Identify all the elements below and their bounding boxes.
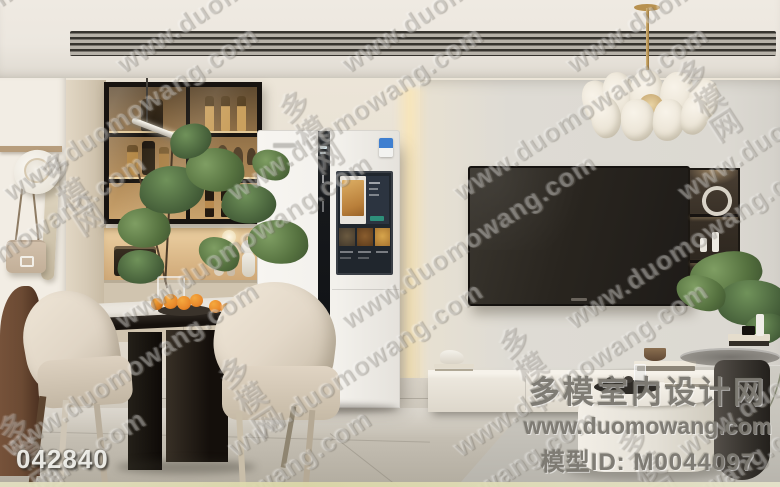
- pendant-cord: [146, 78, 148, 122]
- tv-reflection: [470, 168, 601, 250]
- tv-screen: [468, 166, 690, 306]
- orange: [163, 294, 178, 309]
- dark-box: [742, 326, 755, 335]
- candle: [700, 238, 707, 252]
- caption-line: [358, 251, 371, 253]
- cup: [624, 376, 633, 383]
- caption-line: [376, 251, 388, 253]
- chair-left-seat: [36, 355, 133, 409]
- menu-line: [369, 194, 379, 196]
- table-floor-shadow: [116, 460, 256, 474]
- cosmetic-bottle: [756, 314, 764, 336]
- niche-spotlight: [690, 170, 738, 184]
- food-thumb[interactable]: [339, 228, 355, 246]
- books-stack: [434, 364, 474, 368]
- fridge-brand: [273, 143, 297, 148]
- side-table-column: [714, 360, 770, 480]
- confirm-button[interactable]: [370, 216, 384, 221]
- candle: [712, 232, 719, 252]
- bottom-edge-strip: [0, 482, 780, 487]
- handbag-clasp: [20, 256, 34, 267]
- chandelier: [583, 70, 719, 138]
- cup: [606, 377, 616, 384]
- chandelier-rod: [646, 8, 649, 78]
- astronaut-body: [242, 253, 255, 277]
- interior-render-scene: www.duomowang.comwww.duomowang.comwww.du…: [0, 0, 780, 487]
- bowl: [644, 348, 666, 361]
- glass-cup: [634, 364, 646, 383]
- food-thumb[interactable]: [375, 228, 390, 246]
- fridge-door-seam: [332, 289, 399, 290]
- ac-vent: [70, 31, 776, 56]
- fridge-touchscreen[interactable]: [336, 171, 393, 275]
- energy-label: [379, 138, 393, 157]
- caption-line: [358, 257, 369, 259]
- fridge-display-segment: [320, 152, 326, 154]
- caption-line: [340, 257, 351, 259]
- fridge-display-segment: [322, 175, 324, 183]
- orange: [177, 296, 191, 310]
- caption-line: [340, 251, 353, 253]
- menu-line: [369, 182, 380, 184]
- fridge-display-segment: [320, 146, 327, 149]
- books-on-table: [664, 378, 710, 383]
- tv-logo: [571, 298, 587, 301]
- menu-line: [369, 188, 378, 190]
- drawer-seam: [525, 376, 526, 410]
- fridge-display-segment: [322, 201, 324, 212]
- photo-id-watermark: 042840: [16, 444, 109, 475]
- orange: [151, 298, 163, 310]
- table-leg: [128, 332, 162, 470]
- orange: [209, 300, 222, 313]
- orange: [190, 294, 203, 307]
- recipe-photo: [342, 180, 364, 216]
- deer-sculpture: [440, 350, 464, 364]
- food-thumb[interactable]: [357, 228, 373, 246]
